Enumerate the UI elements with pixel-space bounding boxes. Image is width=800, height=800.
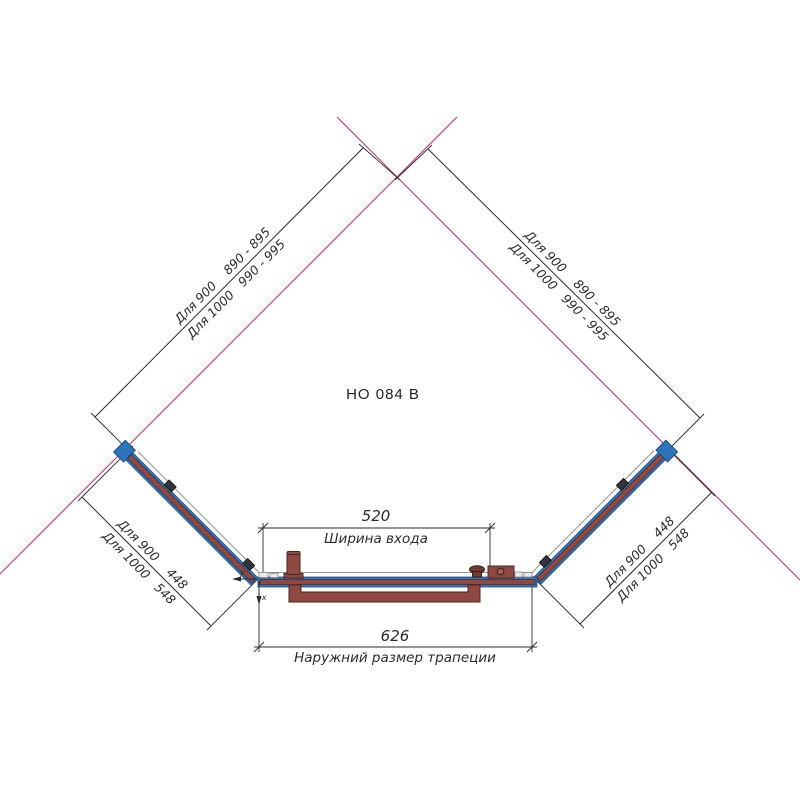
cad-drawing: y x Для 900 890 - 895 Для 1000 990 - 995… [0,0,800,800]
model-title: HO 084 B [346,386,420,403]
axis-y-label: y [239,568,245,577]
entrance-width-label: Ширина входа [324,531,428,547]
drawing-canvas: y x Для 900 890 - 895 Для 1000 990 - 995… [0,0,800,800]
axis-y-arrowhead [232,577,241,582]
wall-line-left [0,117,457,574]
ext-upper-left-top [359,144,400,180]
outer-size-value: 626 [381,627,410,645]
wall-line-right [337,117,800,580]
ext-upper-right-top [395,145,432,180]
wall-lines [0,117,800,580]
roller-wheel [497,568,504,575]
ext-lower-left-bottom [207,575,262,630]
towel-bar [289,585,480,602]
profile-core-left [128,455,255,582]
dim-line-upper-left [95,148,363,417]
corner-bracket-left [259,573,268,578]
axis-x-label: x [261,593,267,602]
door-profile-core [260,580,535,585]
axis-x-arrowhead [257,596,262,605]
outer-size-label: Наружний размер трапеции [294,650,496,666]
guide-bracket-left [270,574,278,578]
guide-bracket-right-1 [515,572,522,577]
door-knob-stem [473,572,482,578]
dim-line-upper-right [428,149,700,418]
ext-lower-right-bottom [531,575,584,628]
entrance-width-value: 520 [362,507,391,525]
guide-bracket-right-2 [524,573,532,578]
